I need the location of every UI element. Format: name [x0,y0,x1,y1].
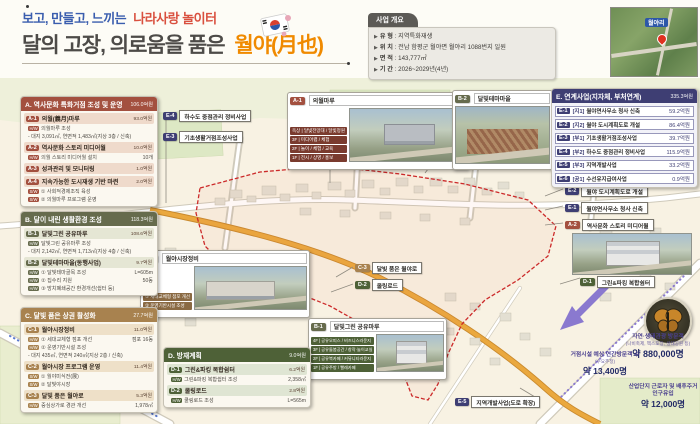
erow-e5: E-5[부3]지역개발사업33.2억원 [555,160,694,171]
sub-b2-1: H/W① 달빛테마골목 조성L=605m [28,269,153,276]
panel-c-total: 27.7억원 [133,312,153,319]
sub-c1-3: - 대지 435㎡, 연면적 240㎡(지상 2층 / 신축) [28,352,153,359]
subtitle-right: 나라사랑 놀이터 [133,11,216,26]
item-c2: C-2 월야시장 프로그램 운영 11.4억원 [24,361,154,372]
b1-rendering-photo [376,334,444,372]
e3-text: 기초생활거점조성사업 [179,131,242,143]
panel-c-commerce: C. 달빛 품은 상권 활성화 27.7억원 C-1 월야시장정비 11.0억원… [20,307,158,413]
panel-a-total: 106.0억원 [130,101,153,108]
b2-rendering-photo [455,106,550,164]
overview-title: 사업 개요 [368,13,418,27]
location-inset-map: 월야리 [610,7,698,77]
korean-flag-icon [258,12,292,38]
panel-b-living-env: B. 달이 내린 생활환경 조성 118.3억원 B-1 달빛그린 공유마루 1… [20,211,158,296]
panel-e-total: 335.3억원 [670,93,693,100]
sub-c2-1: S/W① 월야미식전(展) [28,373,153,380]
sub-a1-1: H/W의월마루 조성 [28,125,153,132]
sub-c3-1: H/W중심상가로 경관 개선1,978㎡ [28,402,153,409]
b1-floor-2f: 2F | 공유북카페 / 커뮤니티라운지 [311,355,374,363]
b1-floor-program: 4F | 공유오피스 / 비즈니스라운지 3F | 공유돌봄공간 / 창작·놀이… [311,334,374,372]
erow-e3: E-3[부1]기초생활거점조성사업39.7억원 [555,133,694,144]
map-label-e4: E-4 하수도 중점관리 정비사업 [163,110,251,122]
c3-text: 달빛 품은 월야로 [372,262,423,274]
map-label-a2: A-2 역사문화 스토리 미디어월 [565,219,654,231]
sub-c2-2: S/W② 달빛야시장 [28,381,153,388]
d1-text: 그린&파킹 복합쉼터 [597,276,655,288]
c1-photo [194,266,307,310]
panel-a-title: A. 역사문화 특화거점 조성 및 운영 [25,99,123,109]
b1-floor-1f: 1F | 공유주방 / 빨래카페 [311,364,374,372]
a1-floor-program: 옥상 | 달빛전망대 / 달빛정원 3F | 미디어랩 / 체험 2F | 놀이… [290,108,347,162]
item-c3: C-3 달빛 품은 월야로 5.3억원 [24,390,154,401]
sub-d2-1: H/W쿨링로드 조성L=565m [171,397,306,404]
callout-b2-title: 달빛테마마을 [474,93,550,104]
stat-workers-value: 약 12,000명 [628,398,698,410]
sub-a4-2: S/W② 의월마루 프로그램 운영 [28,196,153,203]
e4-tag: E-4 [163,112,177,120]
poster-root: 보고, 만들고, 느끼는 나라사랑 놀이터 달의 고장, 의로움을 품은 월야(… [0,0,700,424]
stat-annual-title: 거점시설 예상 연간방문객 수 [570,352,640,359]
stat-eco-title: 자연·생태관광 방문객 [616,334,700,341]
item-a1: A-1 의월(義月)마루 93.0억원 [24,113,154,124]
sub-a1-2: - 대지 3,091㎡, 연면적 1,483㎡(지상 3층 / 신축) [28,133,153,140]
sub-c1-2: H/W② 운영기반시설 조성 [28,344,153,351]
item-d1: D-1 그린&파킹 복합쉼터 6.2억원 [167,364,307,375]
d2-tag: D-2 [355,281,370,289]
callout-a1-uiwol-maru: A-1 의월마루 옥상 | 달빛전망대 / 달빛정원 3F | 미디어랩 / 체… [287,92,469,170]
item-a3: A-3 성과관리 및 모니터링 1.0억원 [24,163,154,174]
b1-floor-3f: 3F | 공유돌봄공간 / 창작·놀이교실 [311,346,374,354]
panel-d-disaster: D. 방재계획 9.0억원 D-1 그린&파킹 복합쉼터 6.2억원 H/W그린… [163,347,311,408]
e4-text: 하수도 중점관리 정비사업 [179,110,251,122]
a2-text: 역사문화 스토리 미디어월 [582,219,654,231]
map-label-d2: D-2 쿨링로드 [355,279,403,291]
title-left: 달의 고장, 의로움을 품은 [22,34,225,57]
b1-floor-4f: 4F | 공유오피스 / 비즈니스라운지 [311,337,374,345]
callout-a1-tag: A-1 [290,97,305,105]
callout-b2-tag: B-2 [455,95,470,103]
callout-b1-tag: B-1 [311,323,326,331]
overview-type: ▶유 형 : 지역특화재생 [374,32,550,43]
header-divider [22,63,348,64]
sub-a2-1: H/W의월 스토리 미디어월 설치10개 [28,154,153,161]
e5-tag: E-5 [455,398,469,406]
panel-c-title: C. 달빛 품은 상권 활성화 [25,310,96,320]
panel-b-total: 118.3억원 [131,216,153,223]
sub-b1-2: - 대지 2,142㎡, 연면적 1,713㎡(지상 4층 / 신축) [28,248,153,255]
item-c1: C-1 월야시장정비 11.0억원 [24,324,154,335]
panel-a-heritage: A. 역사문화 특화거점 조성 및 운영 106.0억원 A-1 의월(義月)마… [20,96,158,207]
a1-floor-roof: 옥상 | 달빛전망대 / 달빛정원 [290,127,347,135]
erow-e4: E-4[부2]하수도 중점관리 정비사업115.9억원 [555,146,694,157]
callout-b1-shared-maru: B-1 달빛그린 공유마루 4F | 공유오피스 / 비즈니스라운지 3F | … [308,318,447,380]
map-label-e3: E-3 기초생활거점조성사업 [163,131,243,143]
stat-annual-visitors: 거점시설 예상 연간방문객 수 (수요추정) 약 13,400명 [570,352,640,377]
panel-e-title: E. 연계사업(지자체, 부처연계) [556,91,641,101]
stat-annual-sub: (수요추정) [570,359,640,365]
stat-industrial-workers: 산업단지 근로자 및 배후주거 인구유입 약 12,000명 [628,384,698,410]
sub-d1-1: H/W그린&파킹 복합쉼터 조성2,358㎡ [171,376,306,383]
item-a4: A-4 지속가능한 도시재생 기반 마련 2.0억원 [24,176,154,187]
erow-e2: E-2[지2]월야 도시계획도로 개설86.4억원 [555,119,694,130]
e5-text: 지역개발사업(도로 확장) [471,396,540,408]
stat-annual-value: 약 13,400명 [570,365,640,377]
d1-tag: D-1 [580,278,595,286]
township-office-photo [572,233,692,275]
e1-text: 월야면사무소 청사 신축 [581,202,648,214]
e2-tag: E-2 [565,187,579,195]
sub-c1-1: H/W① 세대교체형 점포 개선점포 16동 [28,336,153,343]
panel-b-title: B. 달이 내린 생활환경 조성 [25,214,102,224]
map-label-c3: C-3 달빛 품은 월야로 [355,262,422,274]
subtitle-left: 보고, 만들고, 느끼는 [22,11,126,26]
panel-d-total: 9.0억원 [289,352,306,359]
sub-a4-1: S/W① 사회적경제조직 육성 [28,188,153,195]
sub-b1-1: H/W달빛그린 공유마루 조성 [28,240,153,247]
divider-dot [347,62,350,65]
stat-workers-title: 산업단지 근로자 및 배후주거 인구유입 [628,384,698,397]
e1-tag: E-1 [565,204,579,212]
map-label-e1: E-1 월야면사무소 청사 신축 [565,202,648,214]
callout-b2-theme-village: B-2 달빛테마마을 [452,90,553,170]
corner-dot [26,5,29,8]
inset-place-label: 월야리 [645,18,668,27]
callout-a1-title: 의월마루 [309,95,466,106]
sub-b2-3: H/W③ 방치폐쇄공간 환경개선(쉼터 등) [28,285,153,292]
panel-d-title: D. 방재계획 [168,350,202,360]
e3-tag: E-3 [163,133,177,141]
panel-e-linked-projects: E. 연계사업(지자체, 부처연계) 335.3억원 E-1[지1]월야면사무소… [551,88,698,188]
a1-floor-1f: 1F | 전시 / 상영 / 홍보 [290,154,347,162]
overview-location: ▶위 치 : 전남 함평군 월야면 월야리 1088번지 일원 [374,43,550,54]
overview-area: ▶면 적 : 143,777㎡ [374,54,550,65]
a1-floor-2f: 2F | 놀이 / 체험 / 교육 [290,145,347,153]
a1-rendering-photo [349,108,466,162]
erow-e1: E-1[지1]월야면사무소 청사 신축59.2억원 [555,106,694,117]
overview-period: ▶기 간 : 2026~2029년(4년) [374,65,550,76]
item-b1: B-1 달빛그린 공유마루 108.6억원 [24,228,154,239]
item-d2: D-2 쿨링로드 2.8억원 [167,385,307,396]
callout-b1-title: 달빛그린 공유마루 [330,321,444,332]
callout-c1-market: C-1 월야시장정비 ① 세대교체형 점포 개선 ② 운영기반시설 조성 [140,250,310,318]
sub-b2-2: H/W② 집수리 지원50동 [28,277,153,284]
erow-e6: E-6[공1]수선유지급여사업0.9억원 [555,173,694,184]
c3-tag: C-3 [355,264,370,272]
map-label-d1: D-1 그린&파킹 복합쉼터 [580,276,655,288]
project-overview-box: 사업 개요 ▶유 형 : 지역특화재생 ▶위 치 : 전남 함평군 월야면 월야… [368,9,556,80]
d2-text: 쿨링로드 [372,279,403,291]
item-b2: B-2 달빛테마마을(동행사업) 9.7억원 [24,257,154,268]
stat-eco-sub: (나비축제, 엑스포장, 생태공원 등) [616,341,700,347]
map-label-e5: E-5 지역개발사업(도로 확장) [455,396,540,408]
a1-floor-3f: 3F | 미디어랩 / 체험 [290,136,347,144]
callout-c1-title: 월야시장정비 [162,253,307,264]
item-a2: A-2 역사문화 스토리 미디어월 10.0억원 [24,142,154,153]
a2-tag: A-2 [565,221,580,229]
